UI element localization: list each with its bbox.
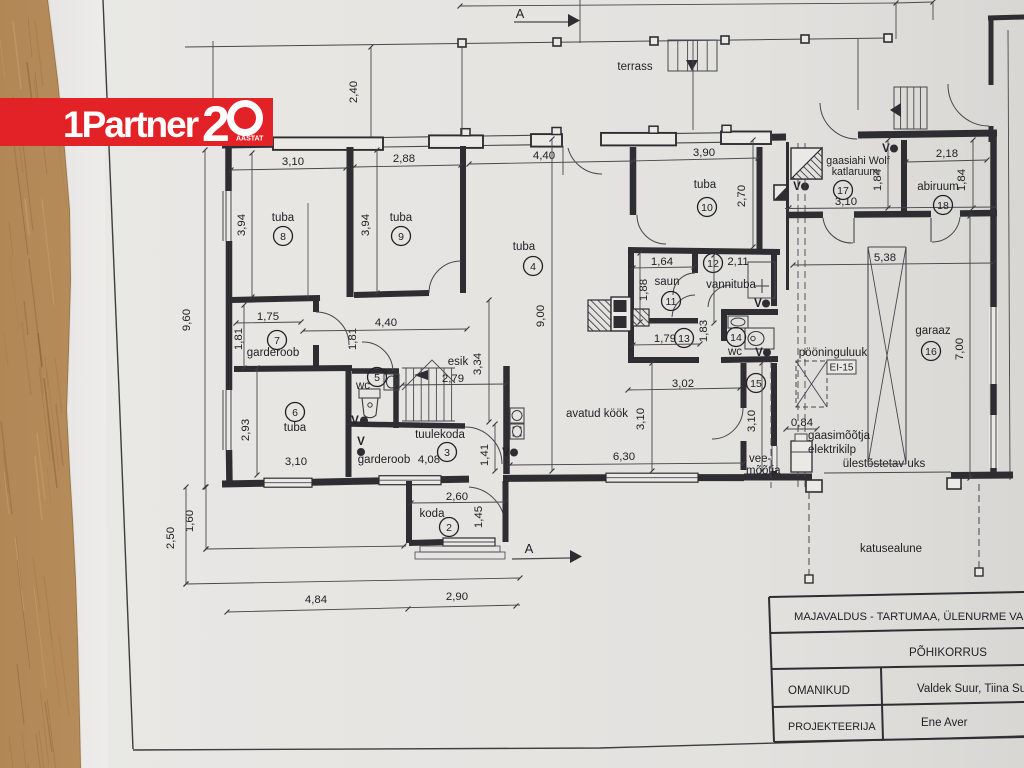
svg-text:3,10: 3,10 <box>746 410 758 432</box>
svg-text:gaasimõõtja: gaasimõõtja <box>808 430 871 442</box>
svg-text:3,10: 3,10 <box>635 408 647 430</box>
svg-text:wc: wc <box>355 380 370 392</box>
svg-text:2: 2 <box>446 522 452 534</box>
svg-text:A: A <box>525 541 534 556</box>
svg-text:wc: wc <box>727 346 742 358</box>
svg-text:tuba: tuba <box>694 179 717 191</box>
svg-text:13: 13 <box>678 333 690 345</box>
svg-text:16: 16 <box>925 346 937 358</box>
svg-text:7: 7 <box>274 335 280 347</box>
svg-text:2,50: 2,50 <box>165 527 177 549</box>
svg-text:A: A <box>516 6 525 21</box>
svg-text:9: 9 <box>398 231 404 243</box>
svg-text:3: 3 <box>444 447 450 459</box>
svg-text:garderoob: garderoob <box>358 454 410 466</box>
svg-text:2,11: 2,11 <box>727 256 748 268</box>
svg-text:Valdek Suur, Tiina Suur: Valdek Suur, Tiina Suur <box>917 683 1024 695</box>
svg-text:V: V <box>754 298 762 310</box>
svg-text:2,18: 2,18 <box>936 148 958 160</box>
svg-text:garaaz: garaaz <box>915 325 950 337</box>
svg-text:4: 4 <box>530 261 536 273</box>
svg-text:14: 14 <box>730 332 742 344</box>
svg-text:2,88: 2,88 <box>393 153 415 165</box>
svg-text:OMANIKUD: OMANIKUD <box>788 685 850 697</box>
svg-text:1Partner: 1Partner <box>63 104 199 145</box>
svg-text:1,75: 1,75 <box>257 311 279 323</box>
svg-text:1,64: 1,64 <box>651 256 673 268</box>
svg-text:3,34: 3,34 <box>472 353 484 375</box>
svg-text:1,79: 1,79 <box>654 333 676 345</box>
svg-text:1,81: 1,81 <box>347 328 359 350</box>
svg-text:0,84: 0,84 <box>791 417 813 429</box>
svg-text:V: V <box>755 347 763 359</box>
svg-text:1,84: 1,84 <box>872 169 884 191</box>
svg-text:10: 10 <box>701 202 713 214</box>
svg-text:4,84: 4,84 <box>305 594 327 606</box>
svg-text:PÕHIKORRUS: PÕHIKORRUS <box>909 646 987 659</box>
svg-text:vee-: vee- <box>749 453 772 465</box>
svg-text:Ene Aver: Ene Aver <box>921 717 968 729</box>
svg-text:3,94: 3,94 <box>360 214 372 236</box>
svg-text:3,90: 3,90 <box>693 147 715 159</box>
svg-text:AASTAT: AASTAT <box>236 136 264 143</box>
svg-text:5: 5 <box>374 372 380 384</box>
svg-text:PROJEKTEERIJA: PROJEKTEERIJA <box>788 721 876 733</box>
svg-text:2: 2 <box>202 96 228 152</box>
svg-text:V: V <box>882 143 890 155</box>
svg-text:2,70: 2,70 <box>736 185 748 207</box>
svg-text:1,83: 1,83 <box>698 320 710 342</box>
svg-text:4,40: 4,40 <box>375 317 397 329</box>
svg-text:avatud köök: avatud köök <box>566 408 628 420</box>
svg-text:tuulekoda: tuulekoda <box>415 429 465 441</box>
svg-text:elektrikilp: elektrikilp <box>808 444 856 456</box>
svg-text:2,90: 2,90 <box>446 591 468 603</box>
svg-text:12: 12 <box>707 258 719 270</box>
svg-text:mõõtja: mõõtja <box>746 465 781 477</box>
svg-text:9,00: 9,00 <box>535 305 547 327</box>
svg-text:3,10: 3,10 <box>282 156 304 168</box>
svg-text:8: 8 <box>280 231 286 243</box>
svg-text:abiruum: abiruum <box>917 181 959 193</box>
svg-text:V: V <box>502 447 510 459</box>
svg-text:tuba: tuba <box>284 422 307 434</box>
svg-text:V: V <box>357 436 365 448</box>
svg-text:V: V <box>351 415 359 427</box>
svg-text:2,93: 2,93 <box>240 419 252 441</box>
svg-text:koda: koda <box>420 508 446 520</box>
svg-text:MAJAVALDUS - TARTUMAA, ÜLENURM: MAJAVALDUS - TARTUMAA, ÜLENURME VALD, <box>794 611 1024 623</box>
svg-text:saun: saun <box>655 276 680 288</box>
svg-text:15: 15 <box>750 378 762 390</box>
svg-text:7,00: 7,00 <box>954 338 966 360</box>
svg-text:1,88: 1,88 <box>638 279 650 301</box>
svg-text:pööninguluuk: pööninguluuk <box>799 347 868 359</box>
svg-text:6,30: 6,30 <box>613 451 635 463</box>
svg-text:katusealune: katusealune <box>860 543 922 555</box>
svg-text:terrass: terrass <box>617 61 652 73</box>
svg-text:2,79: 2,79 <box>442 373 464 385</box>
svg-text:tuba: tuba <box>513 241 536 253</box>
svg-text:18: 18 <box>937 200 949 212</box>
svg-text:3,10: 3,10 <box>835 196 857 208</box>
svg-text:1,41: 1,41 <box>479 444 491 466</box>
svg-text:2,60: 2,60 <box>446 491 468 503</box>
svg-text:3,02: 3,02 <box>672 378 694 390</box>
svg-text:tuba: tuba <box>390 212 413 224</box>
svg-text:5,38: 5,38 <box>874 252 896 264</box>
svg-text:3,10: 3,10 <box>285 456 307 468</box>
svg-text:tuba: tuba <box>272 212 295 224</box>
svg-text:EI-15: EI-15 <box>830 363 854 374</box>
svg-text:2,40: 2,40 <box>348 81 360 103</box>
svg-text:6: 6 <box>292 407 298 419</box>
svg-text:4,08: 4,08 <box>418 454 440 466</box>
svg-text:11: 11 <box>666 296 677 308</box>
svg-text:1,45: 1,45 <box>473 506 485 528</box>
svg-text:V: V <box>793 181 801 193</box>
svg-text:1,81: 1,81 <box>233 328 245 350</box>
svg-text:9,60: 9,60 <box>181 309 193 331</box>
svg-text:3,94: 3,94 <box>236 214 248 236</box>
svg-text:1,84: 1,84 <box>956 169 968 191</box>
svg-text:esik: esik <box>448 356 469 368</box>
